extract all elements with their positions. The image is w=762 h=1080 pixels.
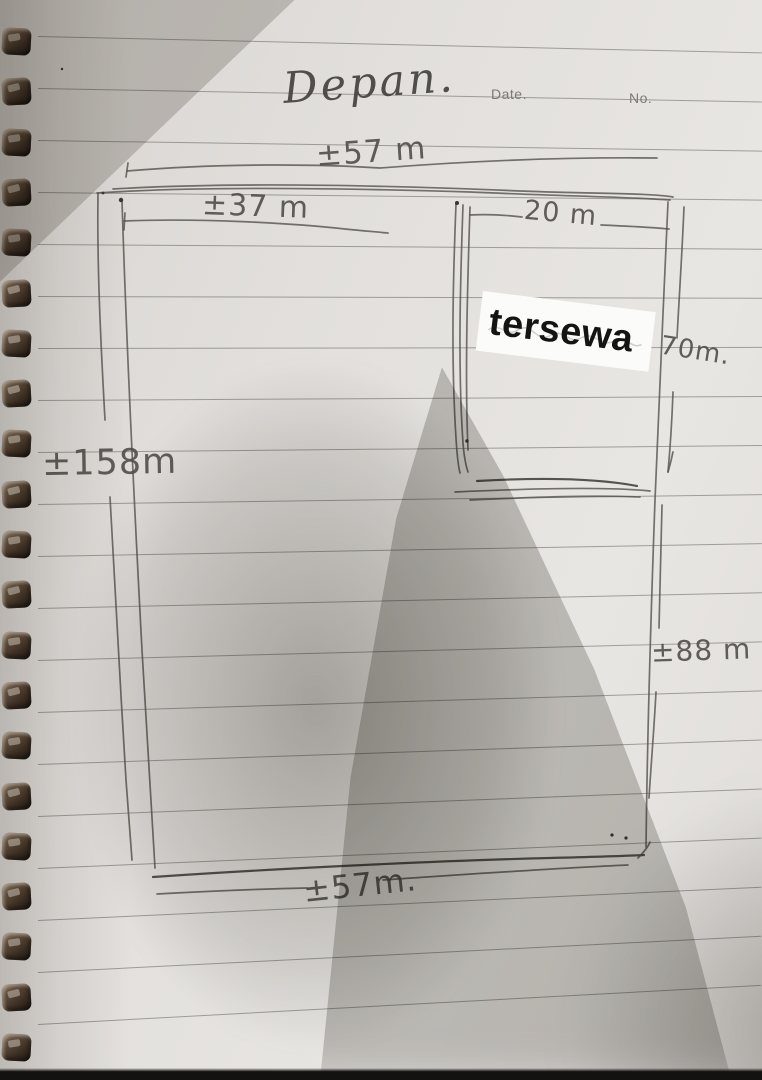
dimension-top-width: ±57 m bbox=[315, 133, 427, 172]
dimension-left-height: ±158m bbox=[42, 445, 178, 482]
dimension-right-height: ±88 m bbox=[651, 635, 752, 666]
notebook-photo: Depan. Date. No. bbox=[0, 0, 762, 1080]
photo-bottom-edge bbox=[0, 1068, 762, 1080]
dimension-upper-left-width: ±37 m bbox=[202, 190, 310, 224]
dimension-upper-right-width: 20 m bbox=[523, 197, 598, 230]
